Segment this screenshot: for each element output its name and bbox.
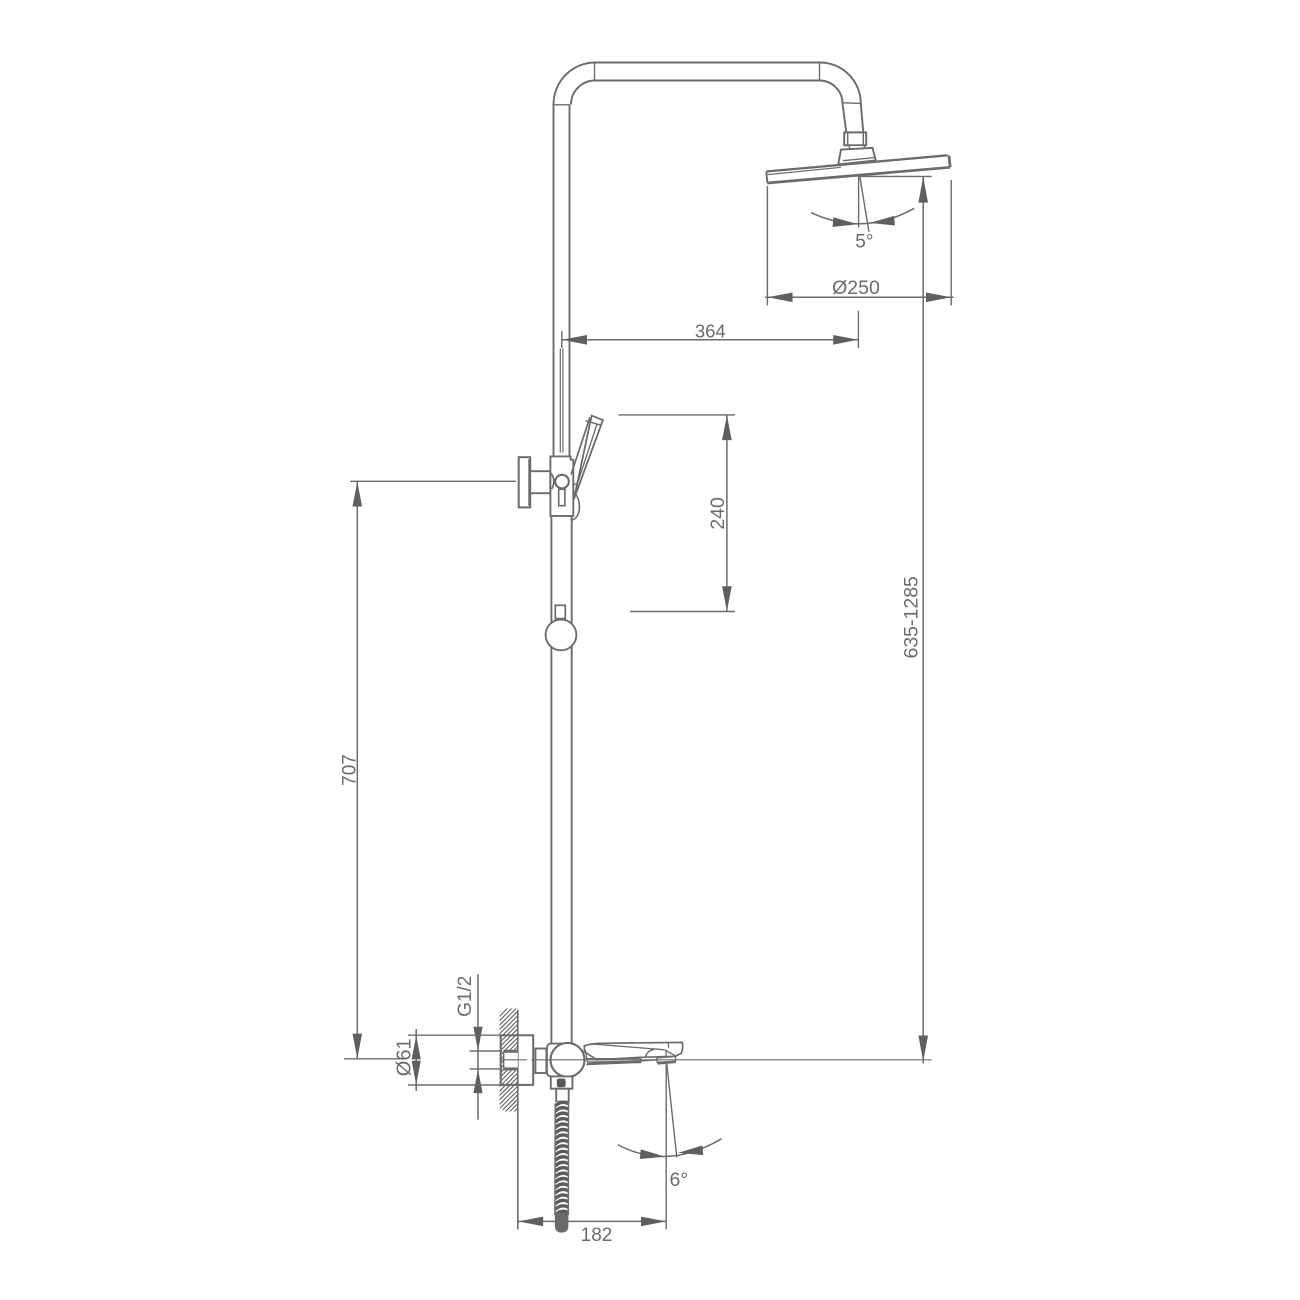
svg-text:707: 707 [340, 754, 361, 786]
svg-text:5°: 5° [855, 231, 873, 252]
svg-text:364: 364 [695, 320, 726, 341]
svg-text:G1/2: G1/2 [455, 976, 476, 1017]
svg-text:240: 240 [707, 497, 729, 530]
svg-text:635-1285: 635-1285 [900, 576, 922, 659]
svg-text:182: 182 [581, 1225, 613, 1246]
svg-text:Ø61: Ø61 [394, 1038, 416, 1076]
svg-text:6°: 6° [670, 1169, 689, 1191]
svg-text:Ø250: Ø250 [832, 277, 880, 299]
